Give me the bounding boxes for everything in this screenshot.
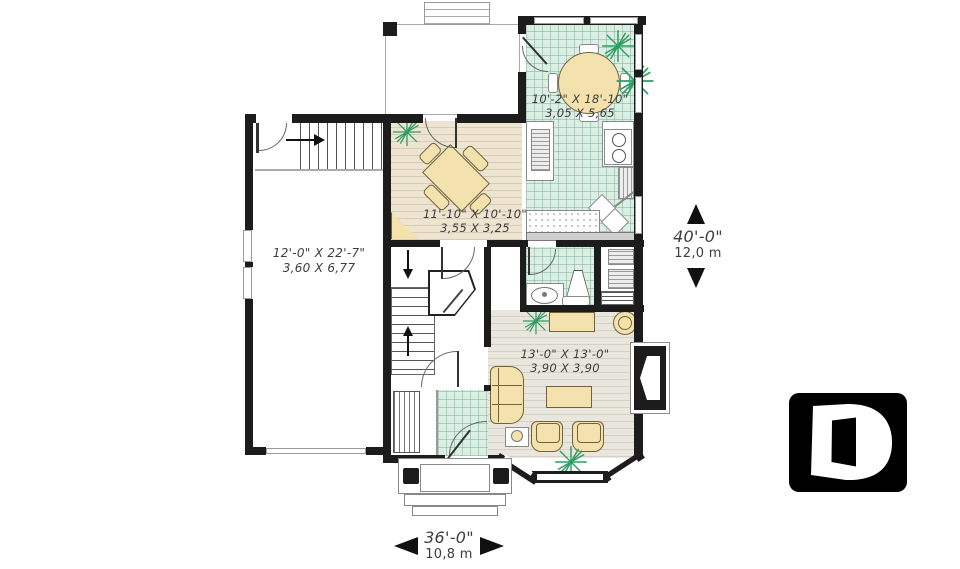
dimension-arrow-left xyxy=(394,537,418,555)
door-leaf xyxy=(455,118,457,148)
width-dimension-imperial: 36'-0" xyxy=(418,529,480,547)
window xyxy=(635,34,642,70)
stair-treads xyxy=(300,123,384,169)
porch-post xyxy=(403,468,419,484)
stair-landing-edge xyxy=(255,169,384,171)
wall xyxy=(245,114,256,123)
round-stool-ring xyxy=(618,316,632,330)
porch-post xyxy=(493,468,509,484)
coffee-table xyxy=(546,386,592,408)
basement-stairs xyxy=(601,291,634,305)
window xyxy=(635,196,642,234)
breakfast-label-imperial: 10'-2" X 18'-10" xyxy=(515,93,645,106)
window xyxy=(243,267,252,299)
logo-d-icon xyxy=(789,393,907,492)
living-label-metric: 3,90 X 3,90 xyxy=(498,362,632,375)
closet-shelf xyxy=(608,269,634,289)
sink-faucet xyxy=(542,292,547,297)
closet-shelf xyxy=(608,249,634,265)
depth-dimension-metric: 12,0 m xyxy=(664,247,732,262)
angled-closet-inner xyxy=(430,272,474,314)
stove-burner xyxy=(612,133,626,147)
floor-plan: 10'-2" X 18'-10" 3,05 X 5,65 11'-10" X 1… xyxy=(0,0,960,569)
wall xyxy=(245,299,253,447)
wall xyxy=(634,410,643,455)
armchair-cushion-line xyxy=(536,423,560,443)
door-arc xyxy=(259,123,287,151)
wall xyxy=(556,240,644,247)
sofa-table xyxy=(549,312,595,332)
sofa-back-line xyxy=(498,368,499,422)
dimension-arrow-down xyxy=(687,268,705,288)
wall xyxy=(292,114,423,123)
top-porch xyxy=(385,24,520,115)
garage-label-imperial: 12'-0" X 22'-7" xyxy=(252,247,386,261)
window xyxy=(243,230,252,262)
plant-icon xyxy=(600,28,636,64)
door-leaf xyxy=(457,351,459,387)
wall xyxy=(484,385,491,391)
stair-direction-line xyxy=(407,336,409,356)
stair-direction-arrow xyxy=(403,269,413,279)
front-steps xyxy=(404,494,506,506)
depth-dimension-imperial: 40'-0" xyxy=(664,228,732,246)
porch-post xyxy=(383,22,397,36)
garage-label-metric: 3,60 X 6,77 xyxy=(252,262,386,276)
stair-direction-line xyxy=(286,139,316,141)
stove-burner xyxy=(612,149,626,163)
dishwasher xyxy=(531,129,550,171)
dimension-arrow-right xyxy=(480,537,504,555)
wall xyxy=(245,123,253,230)
front-steps xyxy=(412,506,498,516)
stair-direction-arrow xyxy=(403,326,413,336)
entry-closet-rod xyxy=(393,391,420,453)
wall xyxy=(520,247,526,307)
wall xyxy=(520,305,644,312)
stair-direction-arrow xyxy=(314,134,325,146)
breakfast-chair xyxy=(548,73,558,93)
wall xyxy=(245,447,266,455)
sofa-cushion-line xyxy=(492,404,522,405)
wall xyxy=(484,247,491,347)
bay-window xyxy=(537,474,603,480)
width-dimension-metric: 10,8 m xyxy=(418,548,480,563)
window xyxy=(590,17,638,24)
wall xyxy=(518,25,526,34)
top-steps xyxy=(424,2,490,25)
wall xyxy=(487,240,528,247)
stair-direction-line xyxy=(407,250,409,270)
lamp xyxy=(511,430,523,442)
dining-label-metric: 3,55 X 3,25 xyxy=(408,222,542,235)
closet-divider xyxy=(436,390,438,456)
window xyxy=(534,17,584,24)
sofa-cushion-line xyxy=(492,385,522,386)
wall xyxy=(383,240,440,247)
wall xyxy=(594,247,601,307)
front-porch-inner xyxy=(420,464,490,492)
breakfast-label-metric: 3,05 X 5,65 xyxy=(515,107,645,120)
armchair-cushion-line xyxy=(577,423,601,443)
dimension-arrow-up xyxy=(687,204,705,224)
wall xyxy=(383,114,391,455)
dining-label-imperial: 11'-10" X 10'-10" xyxy=(408,208,542,221)
wall xyxy=(457,114,520,123)
garage-door xyxy=(266,448,366,454)
living-label-imperial: 13'-0" X 13'-0" xyxy=(498,348,632,361)
